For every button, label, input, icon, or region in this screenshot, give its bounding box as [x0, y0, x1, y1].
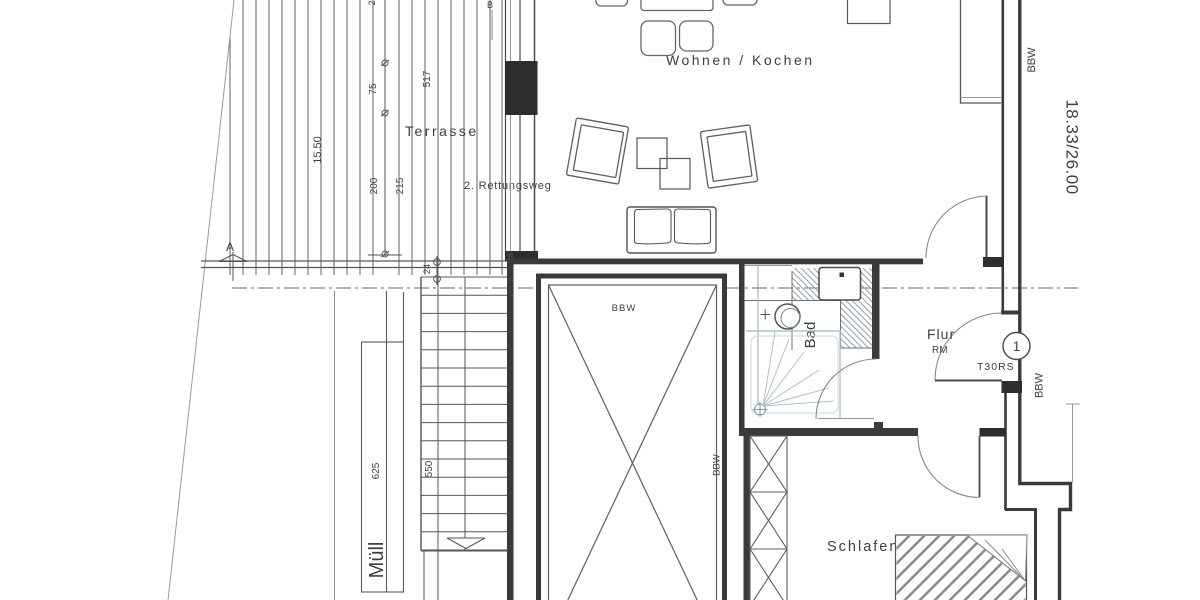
svg-text:2: 2: [367, 0, 377, 5]
svg-text:Schlafen: Schlafen: [827, 539, 899, 555]
svg-text:Müll: Müll: [366, 542, 388, 579]
svg-text:Flur: Flur: [927, 326, 955, 342]
svg-text:BBW: BBW: [1026, 47, 1038, 73]
svg-text:2. Rettungsweg: 2. Rettungsweg: [464, 180, 552, 192]
svg-text:B: B: [487, 0, 493, 10]
svg-text:200: 200: [369, 177, 380, 194]
svg-text:625: 625: [371, 462, 382, 479]
svg-text:T30RS: T30RS: [977, 361, 1015, 373]
svg-text:517: 517: [422, 70, 433, 87]
svg-text:75: 75: [368, 83, 379, 95]
svg-text:BBW: BBW: [712, 454, 723, 476]
svg-text:BBW: BBW: [1034, 372, 1046, 398]
svg-text:550: 550: [424, 460, 435, 477]
svg-text:Terrasse: Terrasse: [405, 123, 479, 139]
svg-text:15.50: 15.50: [312, 136, 324, 164]
svg-text:18.33/26.00: 18.33/26.00: [1063, 99, 1082, 194]
svg-text:24: 24: [422, 264, 432, 274]
svg-text:RM: RM: [932, 345, 948, 356]
svg-text:BBW: BBW: [612, 303, 637, 314]
svg-text:1: 1: [1013, 339, 1021, 354]
svg-text:A: A: [226, 240, 234, 254]
svg-text:215: 215: [395, 177, 406, 194]
svg-text:Bad: Bad: [802, 322, 819, 349]
svg-text:Wohnen / Kochen: Wohnen / Kochen: [666, 52, 815, 68]
